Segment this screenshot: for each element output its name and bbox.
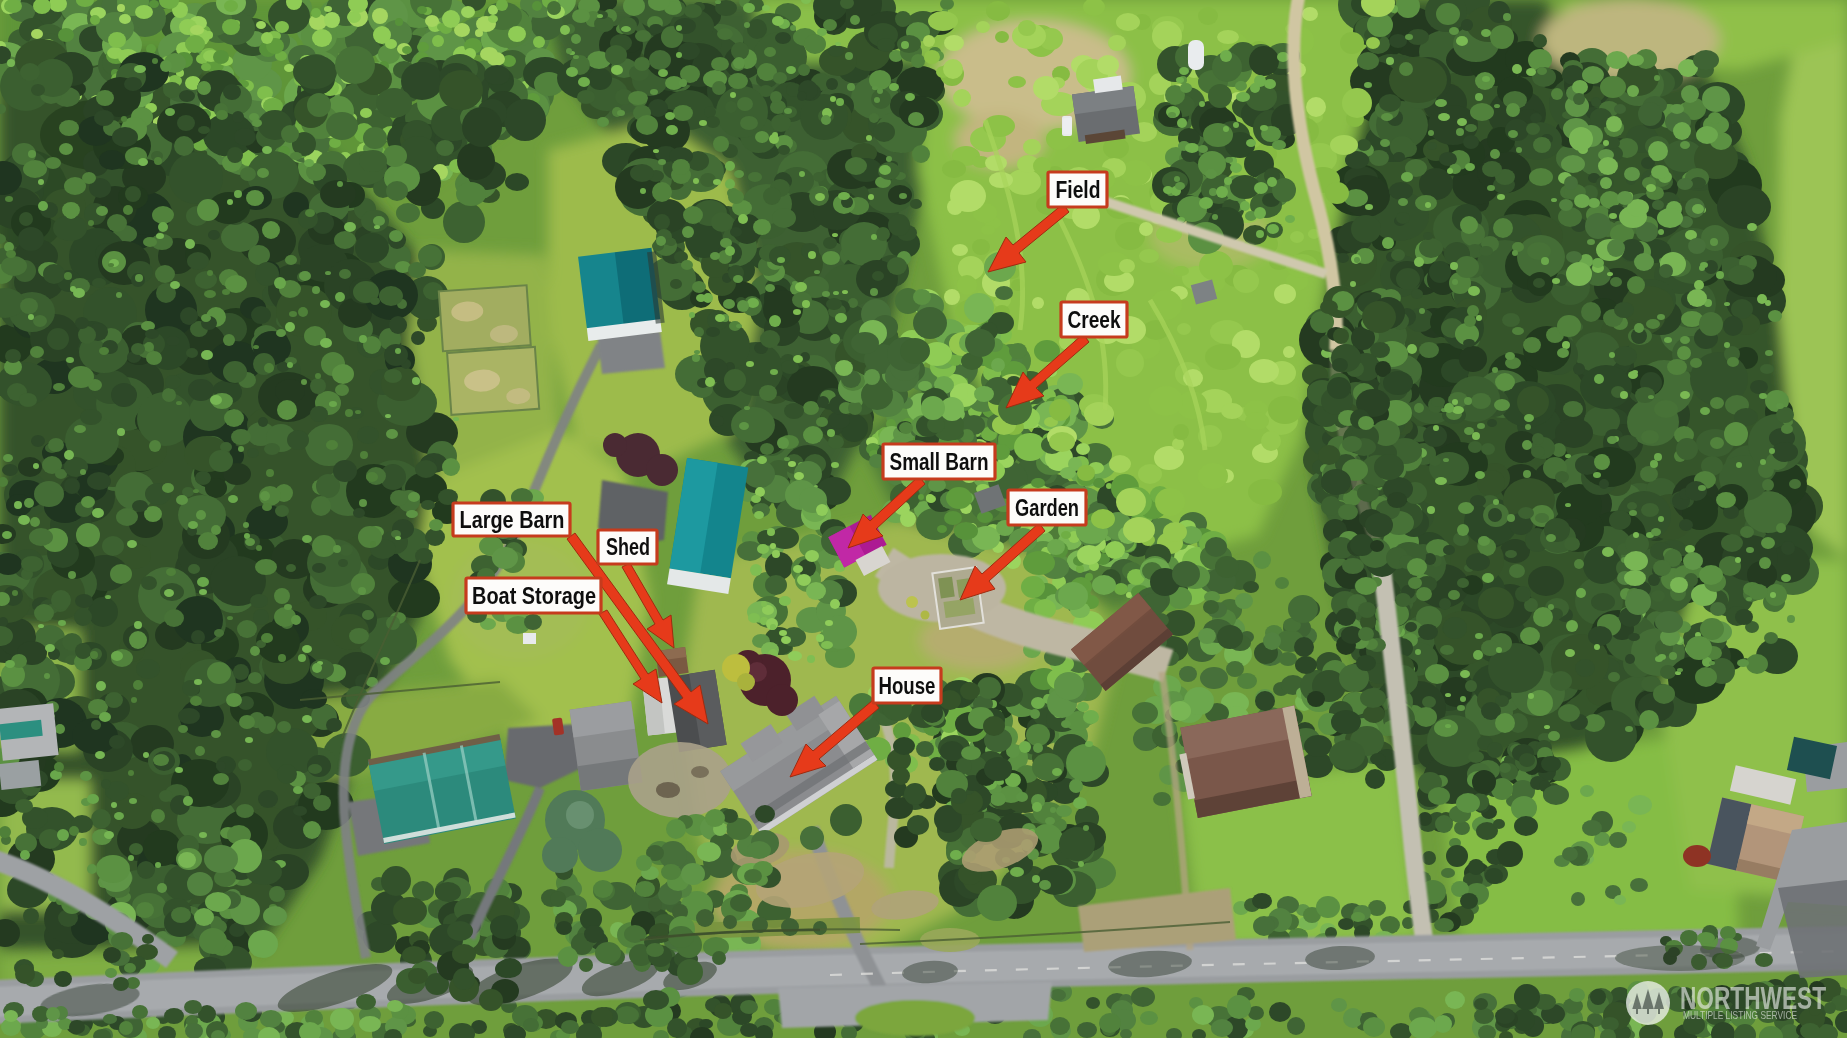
svg-text:Garden: Garden — [1015, 495, 1079, 521]
svg-text:MULTIPLE LISTING SERVICE: MULTIPLE LISTING SERVICE — [1683, 1009, 1797, 1021]
svg-text:Creek: Creek — [1068, 307, 1121, 333]
svg-text:Boat Storage: Boat Storage — [472, 583, 596, 609]
svg-text:Large Barn: Large Barn — [460, 507, 565, 533]
svg-text:Shed: Shed — [606, 534, 650, 560]
svg-text:Small Barn: Small Barn — [890, 449, 989, 475]
svg-text:House: House — [879, 673, 936, 699]
svg-text:Field: Field — [1056, 177, 1101, 203]
